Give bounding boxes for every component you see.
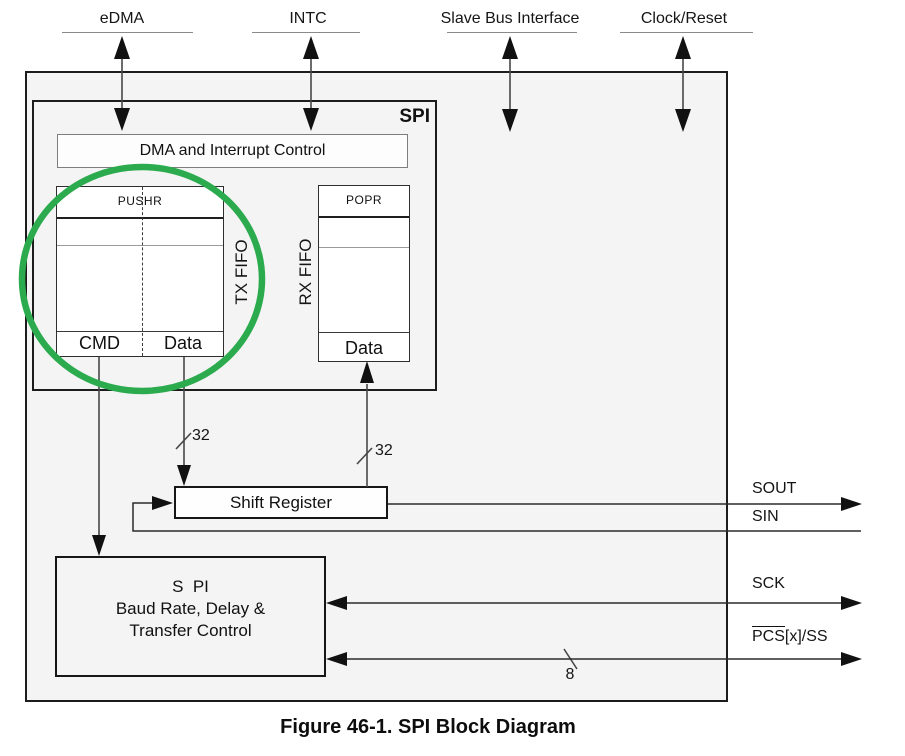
- tx-fifo-side-label: TX FIFO: [232, 239, 252, 304]
- spi-block-diagram-figure: eDMA INTC Slave Bus Interface Clock/Rese…: [0, 0, 905, 756]
- pushr-register-label: PUSHR: [57, 194, 223, 208]
- sin-signal-label: SIN: [752, 508, 779, 526]
- clock-reset-arrowhead-up: [675, 36, 691, 59]
- baud-control-line2: Baud Rate, Delay &: [116, 598, 265, 620]
- tx-fifo-cmd-data-divider: [142, 187, 143, 356]
- bus-underline-slave-bus-interface: [447, 32, 577, 33]
- sck-arrowhead-right: [841, 596, 862, 610]
- rx-fifo-header-separator: [319, 216, 409, 218]
- pcs-overlined-part: PCS: [752, 626, 785, 645]
- rx-fifo-side-label: RX FIFO: [296, 238, 316, 305]
- dma-interrupt-control-block: DMA and Interrupt Control: [57, 134, 408, 168]
- bus-underline-clock-reset: [620, 32, 753, 33]
- pcs-bus-width: 8: [561, 666, 579, 684]
- slave-bus-arrowhead-up: [502, 36, 518, 59]
- spi-title: SPI: [389, 106, 430, 128]
- tx-fifo-header-separator: [57, 217, 223, 219]
- tx-fifo-block: PUSHR CMD Data: [56, 186, 224, 357]
- baud-control-block: S PI Baud Rate, Delay & Transfer Control: [55, 556, 326, 677]
- rx-fifo-row-line: [319, 247, 409, 248]
- shift-register-label: Shift Register: [230, 493, 332, 513]
- baud-control-line1: S PI: [172, 576, 209, 598]
- shift-register-block: Shift Register: [174, 486, 388, 519]
- bus-label-intc: INTC: [289, 10, 326, 28]
- edma-arrowhead-up: [114, 36, 130, 59]
- tx-bus-width: 32: [192, 427, 210, 445]
- popr-register-label: POPR: [319, 193, 409, 207]
- sout-signal-label: SOUT: [752, 480, 796, 498]
- baud-control-line3: Transfer Control: [129, 620, 251, 642]
- dma-interrupt-control-label: DMA and Interrupt Control: [140, 142, 326, 160]
- bus-underline-edma: [62, 32, 193, 33]
- figure-caption: Figure 46-1. SPI Block Diagram: [280, 716, 576, 739]
- sout-arrowhead-right: [841, 497, 862, 511]
- pcs-suffix-part: [x]/SS: [785, 628, 828, 645]
- tx-fifo-row-line: [57, 245, 223, 246]
- pcs-signal-label: PCS[x]/SS: [752, 628, 828, 646]
- bus-label-clock-reset: Clock/Reset: [641, 10, 727, 28]
- rx-fifo-data-label: Data: [319, 338, 409, 359]
- sck-signal-label: SCK: [752, 575, 785, 593]
- rx-fifo-bottom-row-line: [319, 332, 409, 333]
- bus-label-slave-bus-interface: Slave Bus Interface: [441, 10, 580, 28]
- tx-fifo-data-label: Data: [143, 333, 223, 354]
- tx-fifo-cmd-label: CMD: [57, 333, 142, 354]
- rx-bus-width: 32: [375, 442, 393, 460]
- bus-label-edma: eDMA: [100, 10, 144, 28]
- tx-fifo-bottom-row-line: [57, 331, 223, 332]
- bus-underline-intc: [252, 32, 360, 33]
- intc-arrowhead-up: [303, 36, 319, 59]
- pcs-arrowhead-right: [841, 652, 862, 666]
- rx-fifo-block: POPR Data: [318, 185, 410, 362]
